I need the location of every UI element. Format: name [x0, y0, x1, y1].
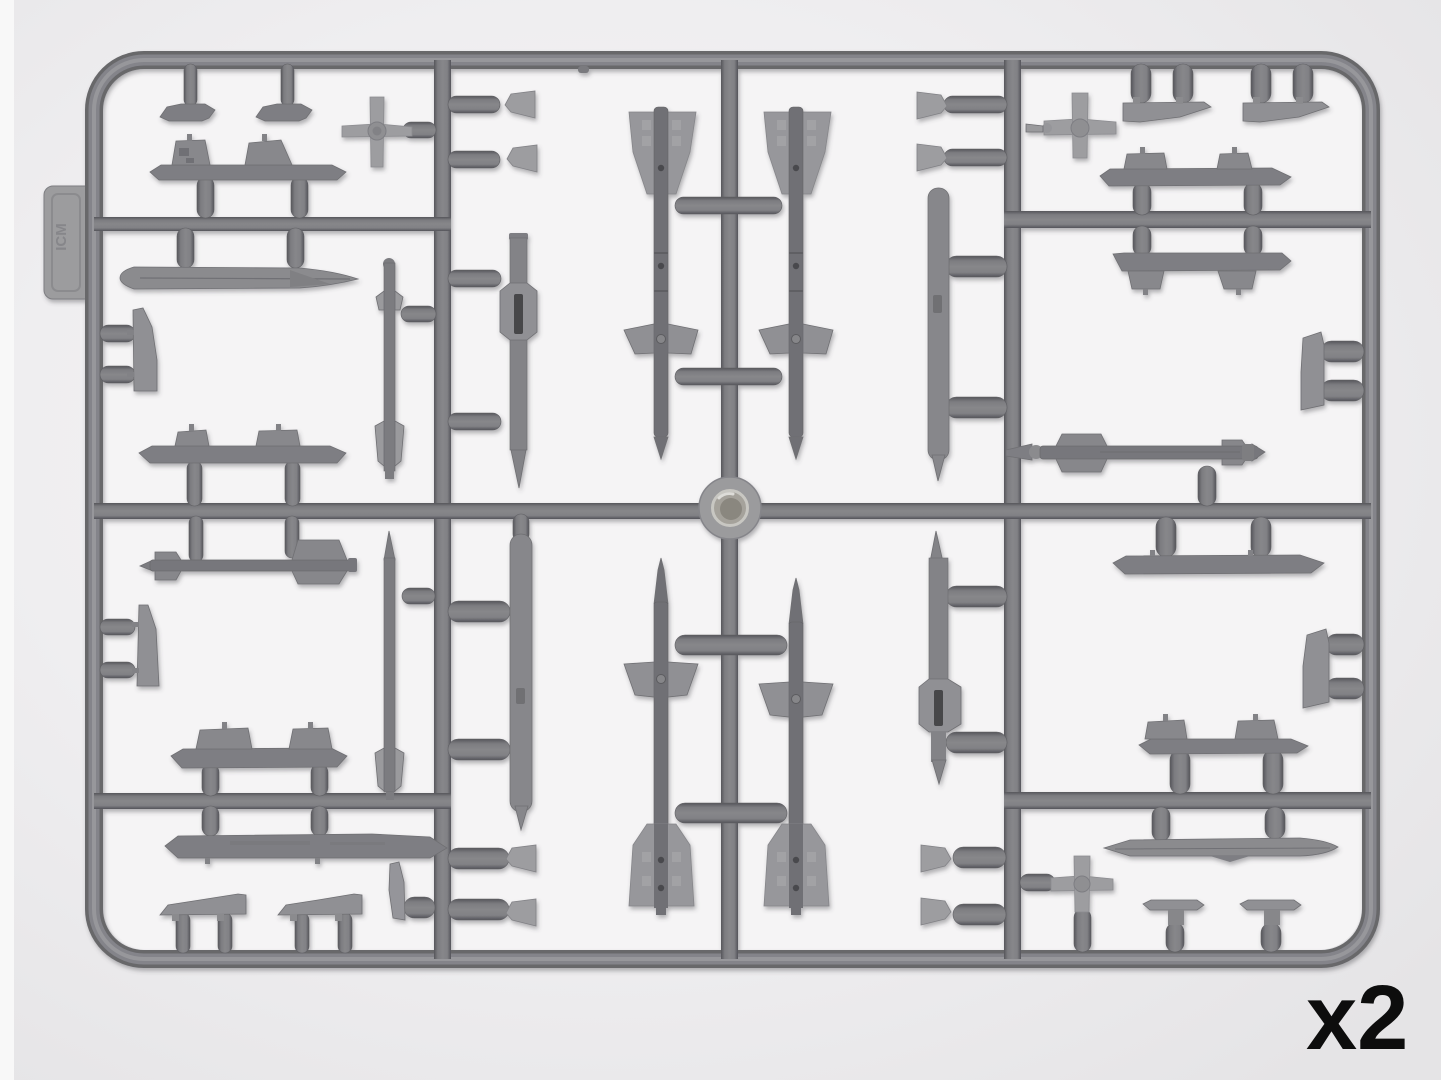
svg-text:x2: x2	[1306, 967, 1408, 1069]
svg-text:ICM: ICM	[53, 223, 70, 251]
